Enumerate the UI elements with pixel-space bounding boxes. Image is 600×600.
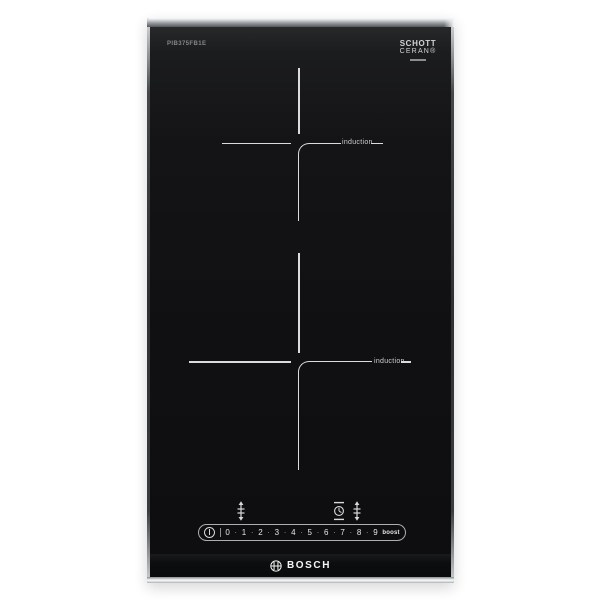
zone-front-vertical-line — [298, 253, 300, 353]
product-photo: PIB375FB1E SCHOTT CERAN® induction induc… — [0, 0, 600, 600]
zone-rear-corner-line — [298, 143, 341, 221]
zone-rear-vertical-line — [298, 68, 300, 134]
schott-ceran-logo-line2: CERAN® — [393, 48, 443, 56]
timer-clock-icon[interactable] — [332, 501, 346, 521]
schott-ceran-fineprint-bar — [410, 59, 426, 61]
zone-front-corner-line — [298, 361, 372, 470]
power-icon[interactable] — [204, 527, 215, 538]
slider-dot: · — [366, 529, 369, 537]
slider-dot: · — [333, 529, 336, 537]
zone-rear-induction-label: induction — [342, 139, 373, 147]
steel-frame-top — [147, 18, 454, 27]
slider-dot: · — [300, 529, 303, 537]
zone-front-horizontal-line — [189, 361, 291, 363]
schott-ceran-logo-line1: SCHOTT — [393, 39, 443, 48]
induction-hob: PIB375FB1E SCHOTT CERAN® induction induc… — [147, 18, 454, 583]
boost-button[interactable]: boost — [382, 530, 399, 536]
steel-frame-bottom — [147, 577, 454, 583]
slider-separator — [220, 528, 221, 537]
slider-level-0[interactable]: 0 — [225, 529, 229, 537]
model-number-label: PIB375FB1E — [167, 41, 206, 47]
slider-level-9[interactable]: 9 — [373, 529, 377, 537]
zone-select-arrows-icon[interactable] — [234, 501, 248, 521]
slider-dot: · — [349, 529, 352, 537]
slider-level-7[interactable]: 7 — [340, 529, 344, 537]
slider-dot: · — [284, 529, 287, 537]
zone-front-dash — [401, 361, 411, 363]
zone-rear-dash — [371, 143, 383, 145]
zone-select-arrows-icon[interactable] — [350, 501, 364, 521]
slider-level-5[interactable]: 5 — [308, 529, 312, 537]
steel-frame-right — [451, 27, 454, 577]
slider-dot: · — [317, 529, 320, 537]
slider-dot: · — [234, 529, 237, 537]
bosch-logo: BOSCH — [287, 561, 331, 571]
slider-level-2[interactable]: 2 — [258, 529, 262, 537]
slider-level-1[interactable]: 1 — [242, 529, 246, 537]
power-level-slider[interactable]: 0 · 1 · 2 · 3 · 4 · 5 · 6 · 7 · 8 · 9 bo… — [198, 524, 406, 541]
ceramic-glass-surface: PIB375FB1E SCHOTT CERAN® induction induc… — [150, 27, 451, 554]
schott-ceran-logo: SCHOTT CERAN® — [393, 39, 443, 61]
zone-rear-horizontal-line — [222, 143, 291, 145]
slider-level-6[interactable]: 6 — [324, 529, 328, 537]
bosch-armature-icon — [270, 560, 282, 572]
slider-dot: · — [251, 529, 254, 537]
slider-level-4[interactable]: 4 — [291, 529, 295, 537]
slider-dot: · — [267, 529, 270, 537]
front-trim-band: BOSCH — [150, 554, 451, 577]
slider-level-8[interactable]: 8 — [357, 529, 361, 537]
slider-level-3[interactable]: 3 — [275, 529, 279, 537]
